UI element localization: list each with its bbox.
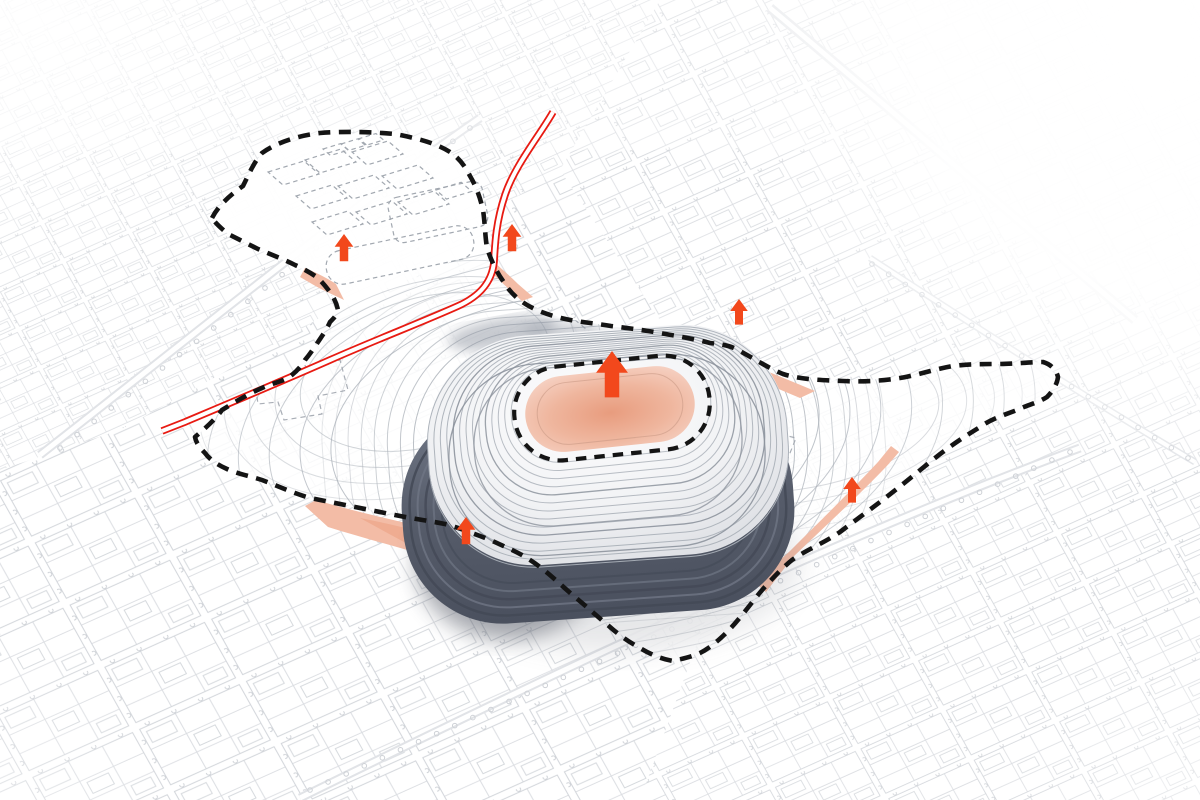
site-diagram [0,0,1200,800]
